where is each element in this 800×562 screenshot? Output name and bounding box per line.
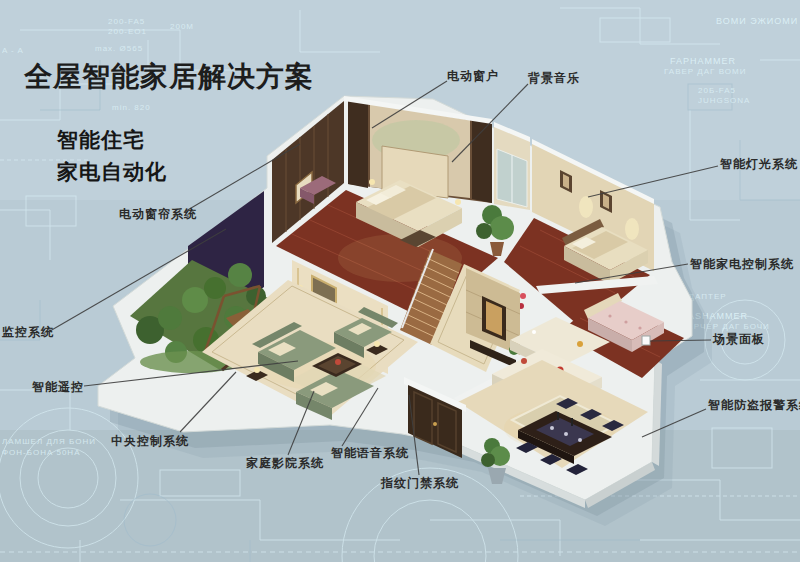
smart-home-poster: 200-FA5 200-ЕО1 max. Ø565 200M A - A min… (0, 0, 800, 562)
bg-text: min. 820 (112, 103, 151, 112)
label-electric-window: 电动窗户 (447, 68, 499, 85)
label-background-music: 背景音乐 (528, 70, 580, 87)
label-smart-voice: 智能语音系统 (331, 445, 409, 462)
scene-panel-device (642, 336, 650, 345)
bg-text: 200-ЕО1 (108, 27, 147, 36)
label-electric-curtain: 电动窗帘系统 (119, 206, 197, 223)
label-home-theater: 家庭影院系统 (246, 455, 324, 472)
subtitle-smart-residence: 智能住宅 (57, 126, 145, 154)
subtitle-appliance-automation: 家电自动化 (57, 158, 167, 186)
bg-text: ГАВЕР ДАГ ВОМИ (664, 67, 746, 76)
bg-text: 200-FA5 (108, 17, 145, 26)
label-fingerprint-access: 指纹门禁系统 (381, 475, 459, 492)
bg-text: ВОМИ ЭЖИОМИ (716, 16, 798, 26)
label-monitoring: 监控系统 (2, 324, 54, 341)
bathroom (494, 122, 530, 210)
bg-text: JUHGSONA (698, 96, 750, 105)
label-appliance-control: 智能家电控制系统 (690, 256, 794, 273)
label-burglar-alarm: 智能防盗报警系统 (708, 397, 800, 414)
bg-text: ФОН-БОНА 50НА (2, 448, 80, 457)
page-title: 全屋智能家居解决方案 (24, 58, 314, 96)
bg-text: ЛАМШЕЛ ДЛЯ БОНИ (2, 437, 96, 446)
bg-text: 20Б-FA5 (698, 86, 736, 95)
label-smart-remote: 智能遥控 (32, 379, 84, 396)
bg-text: max. Ø565 (95, 44, 143, 53)
label-scene-panel: 场景面板 (713, 331, 765, 348)
bg-text: FAPHAMMER (670, 56, 736, 66)
label-smart-lighting: 智能灯光系统 (720, 156, 798, 173)
bg-text: A - A (2, 46, 24, 55)
label-central-control: 中央控制系统 (111, 433, 189, 450)
bg-text: 200M (170, 22, 194, 31)
